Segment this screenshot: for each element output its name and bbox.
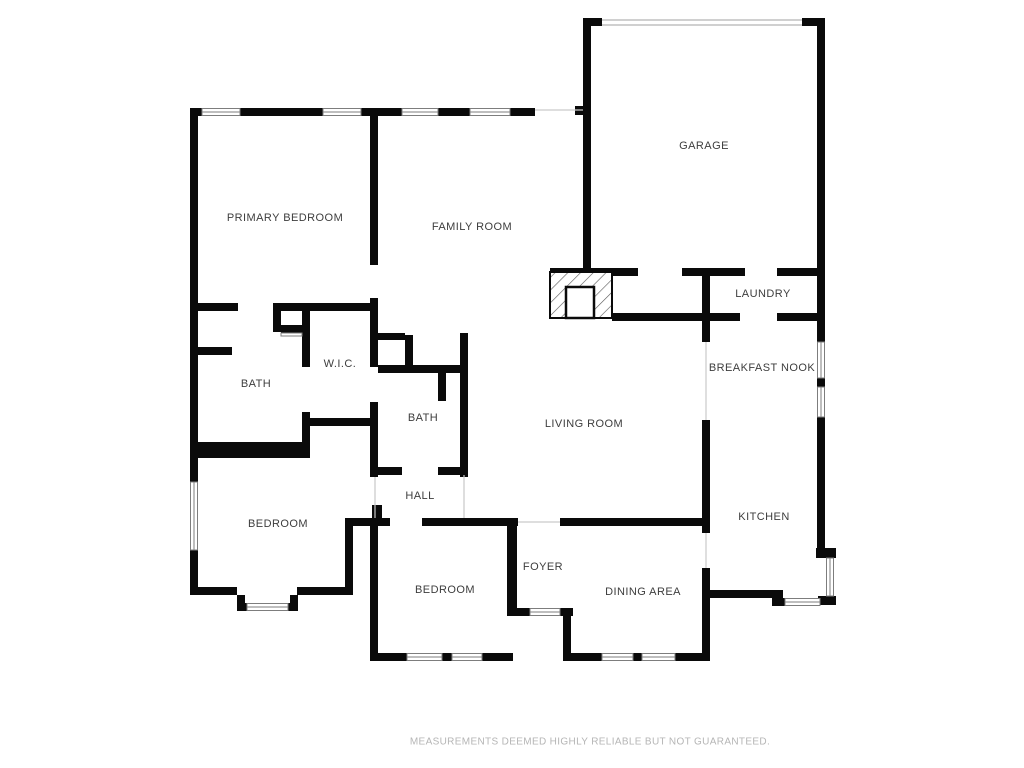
window	[470, 109, 510, 116]
front-door	[530, 609, 560, 616]
garage-door	[602, 20, 802, 25]
fireplace	[550, 272, 612, 318]
room-label-living-room: LIVING ROOM	[545, 418, 623, 430]
room-label-foyer: FOYER	[523, 561, 563, 573]
room-label-primary-bath: BATH	[241, 378, 271, 390]
floor-plan-drawing	[0, 0, 1024, 768]
shower-door	[281, 333, 302, 336]
window	[827, 558, 834, 596]
floor-plan-page: GARAGE PRIMARY BEDROOM FAMILY ROOM LAUND…	[0, 0, 1024, 768]
room-label-bedroom-center: BEDROOM	[415, 584, 475, 596]
window	[323, 109, 361, 116]
room-label-breakfast-nook: BREAKFAST NOOK	[709, 362, 815, 374]
room-label-family-room: FAMILY ROOM	[432, 221, 512, 233]
measurements-disclaimer: MEASUREMENTS DEEMED HIGHLY RELIABLE BUT …	[410, 737, 770, 748]
window	[785, 599, 820, 606]
room-label-primary-bedroom: PRIMARY BEDROOM	[227, 212, 343, 224]
walls	[190, 18, 836, 661]
room-label-garage: GARAGE	[679, 140, 729, 152]
window	[818, 387, 825, 417]
room-label-laundry: LAUNDRY	[735, 288, 791, 300]
window	[407, 654, 442, 661]
window	[402, 109, 438, 116]
window	[247, 604, 288, 611]
room-label-wic: W.I.C.	[324, 358, 357, 370]
window	[202, 109, 240, 116]
window	[602, 654, 633, 661]
room-label-hall-bath: BATH	[408, 412, 438, 424]
room-label-bedroom-left: BEDROOM	[248, 518, 308, 530]
window	[642, 654, 675, 661]
room-label-kitchen: KITCHEN	[738, 511, 789, 523]
room-label-dining-area: DINING AREA	[605, 586, 681, 598]
room-label-hall: HALL	[405, 490, 434, 502]
window	[818, 342, 825, 378]
window	[452, 654, 482, 661]
window	[191, 482, 198, 550]
